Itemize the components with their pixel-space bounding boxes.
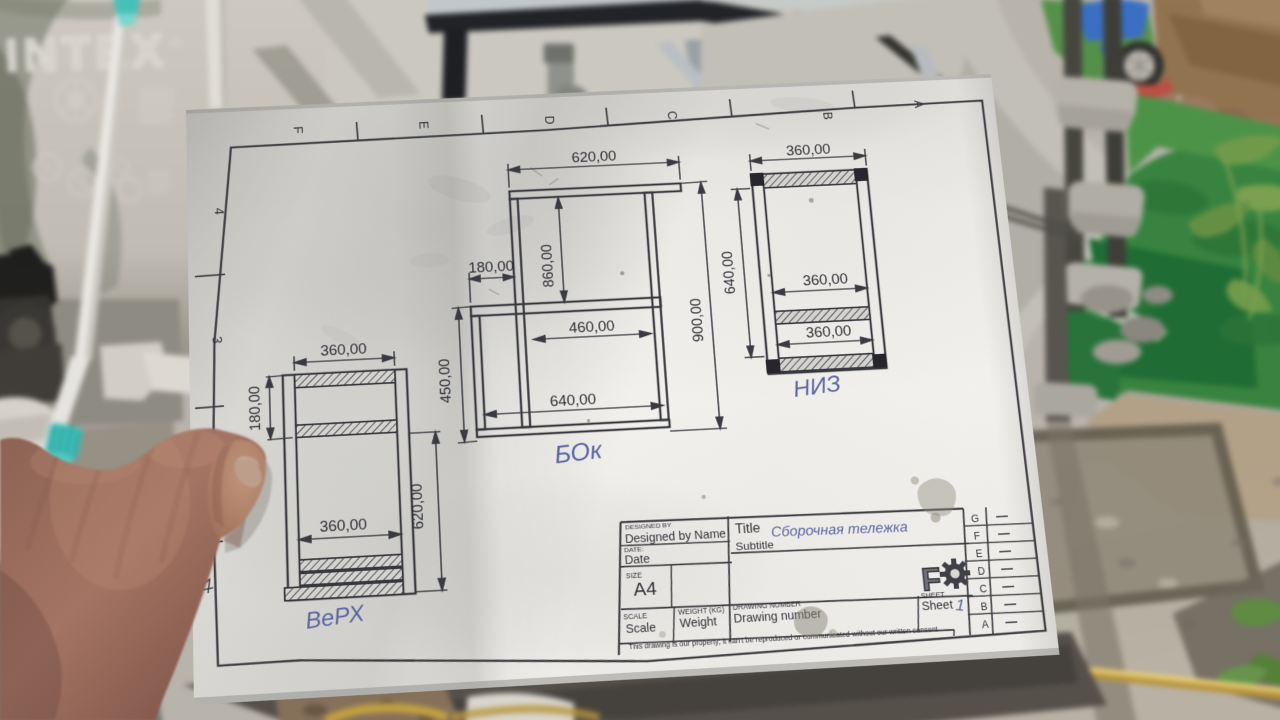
svg-text:180,00: 180,00 [245,386,263,432]
svg-text:C: C [665,111,680,120]
svg-text:®: ® [171,35,181,50]
svg-text:E: E [416,121,431,130]
svg-text:360,00: 360,00 [805,322,852,340]
svg-text:360,00: 360,00 [802,270,849,288]
svg-text:D: D [542,115,557,124]
svg-text:360,00: 360,00 [785,141,831,158]
svg-text:450,00: 450,00 [435,358,454,403]
svg-text:F: F [920,563,943,598]
svg-text:INTEX: INTEX [4,24,169,82]
svg-text:F: F [291,126,306,134]
svg-text:БОк: БОк [553,436,605,469]
svg-text:900,00: 900,00 [686,298,706,343]
svg-text:Title: Title [734,521,760,537]
svg-text:B: B [980,600,988,612]
svg-text:Weight: Weight [679,616,717,631]
svg-text:Scale: Scale [625,622,656,637]
svg-text:620,00: 620,00 [407,483,426,530]
svg-text:4: 4 [212,207,227,215]
svg-text:460,00: 460,00 [568,317,615,335]
svg-text:3: 3 [209,336,224,344]
svg-text:360,00: 360,00 [319,515,367,535]
svg-text:Date: Date [624,553,650,567]
svg-text:C: C [979,582,988,594]
svg-text:Subtitle: Subtitle [735,539,774,554]
svg-text:A4: A4 [633,577,658,600]
svg-text:640,00: 640,00 [549,391,596,410]
svg-text:SCALE: SCALE [623,613,648,622]
svg-text:A: A [911,100,926,109]
svg-text:E: E [975,547,983,559]
svg-text:640,00: 640,00 [718,251,738,295]
svg-text:D: D [977,565,986,577]
svg-text:620,00: 620,00 [571,148,617,166]
svg-text:860,00: 860,00 [537,244,556,288]
svg-text:360,00: 360,00 [320,340,367,359]
svg-text:180,00: 180,00 [468,258,514,276]
svg-text:Sheet: Sheet [921,599,953,614]
svg-text:G: G [970,512,979,524]
svg-text:1: 1 [955,596,965,615]
svg-text:B: B [820,111,835,120]
